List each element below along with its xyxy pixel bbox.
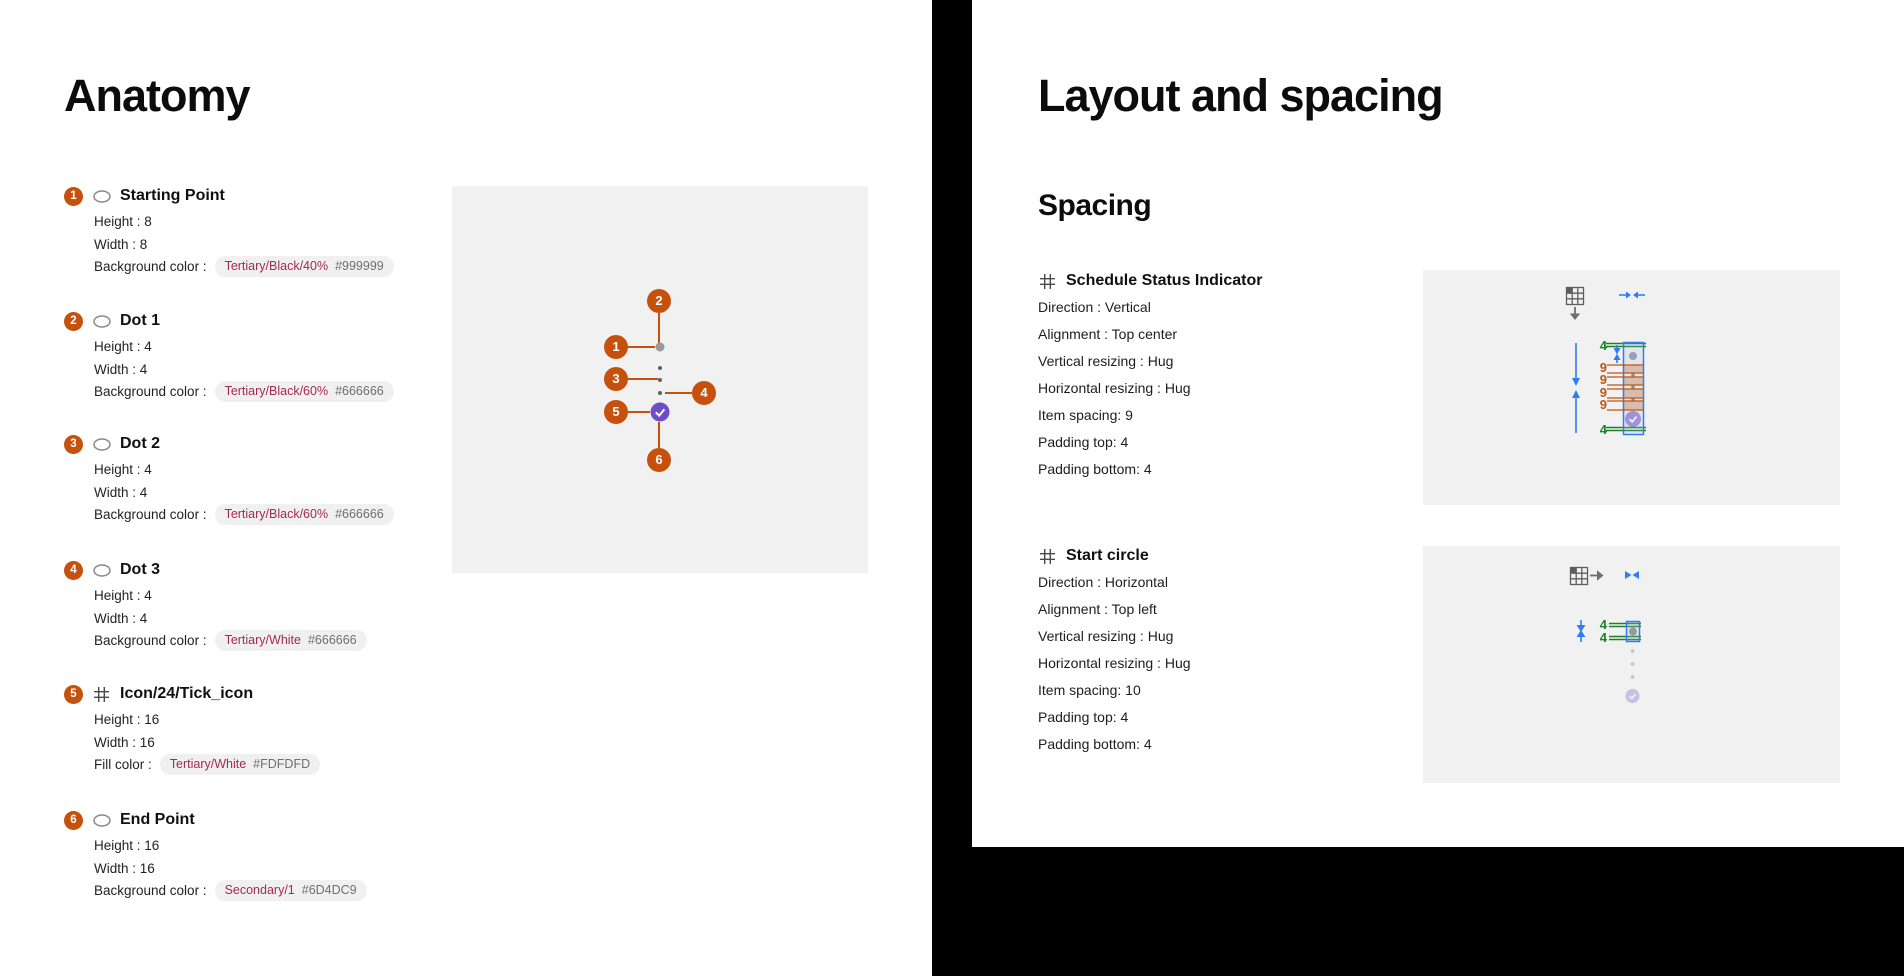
vertical-spacing-diagram	[1423, 270, 1840, 505]
section-property: Padding bottom: 4	[1038, 735, 1152, 753]
section-header: Schedule Status Indicator	[1038, 271, 1262, 291]
anatomy-item-header: 3Dot 2	[64, 434, 160, 454]
hex-value: #FDFDFD	[253, 754, 310, 775]
callout-badge-6: 6	[647, 448, 671, 472]
item-property: Height : 4	[94, 461, 152, 479]
token-name: Secondary/1	[225, 880, 295, 901]
color-token-chip: Secondary/1#6D4DC9	[215, 880, 367, 901]
schedule-status-indicator-spacing-panel: 4 9 9 9 9 4	[1423, 270, 1840, 505]
anatomy-item-header: 4Dot 3	[64, 560, 160, 580]
section-property: Alignment : Top left	[1038, 600, 1157, 618]
item-title: Starting Point	[120, 187, 225, 205]
dot-1	[658, 366, 662, 370]
color-token-chip: Tertiary/Black/40%#999999	[215, 256, 394, 277]
section-property: Padding bottom: 4	[1038, 460, 1152, 478]
item-title: End Point	[120, 811, 195, 829]
section-property: Direction : Horizontal	[1038, 573, 1168, 591]
color-token-chip: Tertiary/White#666666	[215, 630, 367, 651]
anatomy-item: 5Icon/24/Tick_iconHeight : 16Width : 16F…	[64, 684, 444, 784]
frame-icon	[1038, 274, 1057, 289]
section-title: Schedule Status Indicator	[1066, 272, 1262, 290]
item-property: Width : 4	[94, 484, 147, 502]
frame-icon	[1038, 549, 1057, 564]
item-color-property: Background color :Tertiary/Black/60%#666…	[94, 381, 394, 402]
token-name: Tertiary/White	[225, 630, 301, 651]
callout-badge-2: 2	[647, 289, 671, 313]
padding-top-value: 4	[1589, 339, 1607, 353]
token-name: Tertiary/Black/60%	[225, 381, 329, 402]
anatomy-item-header: 2Dot 1	[64, 311, 160, 331]
anatomy-item: 3Dot 2Height : 4Width : 4Background colo…	[64, 434, 444, 534]
item-property: Width : 4	[94, 361, 147, 379]
hug-vertical-icon	[1577, 620, 1586, 642]
color-property-label: Fill color :	[94, 754, 152, 775]
item-number-badge: 2	[64, 312, 83, 331]
section-property: Vertical resizing : Hug	[1038, 627, 1173, 645]
color-token-chip: Tertiary/Black/60%#666666	[215, 381, 394, 402]
item-property: Width : 16	[94, 860, 155, 878]
spacing-section: Start circleDirection : HorizontalAlignm…	[1038, 546, 1458, 756]
callout-badge-1: 1	[604, 335, 628, 359]
item-number-badge: 1	[64, 187, 83, 206]
hex-value: #666666	[335, 381, 384, 402]
callout-badge-3: 3	[604, 367, 628, 391]
anatomy-item-header: 5Icon/24/Tick_icon	[64, 684, 253, 704]
anatomy-item: 2Dot 1Height : 4Width : 4Background colo…	[64, 311, 444, 411]
color-token-chip: Tertiary/White#FDFDFD	[160, 754, 320, 775]
item-number-badge: 3	[64, 435, 83, 454]
item-number-badge: 5	[64, 685, 83, 704]
token-name: Tertiary/Black/40%	[225, 256, 329, 277]
start-circle-spacing-panel: 4 4	[1423, 546, 1840, 783]
anatomy-item: 6End PointHeight : 16Width : 16Backgroun…	[64, 810, 444, 910]
hug-horizontal-icon	[1619, 292, 1645, 299]
anatomy-diagram	[452, 186, 868, 573]
hex-value: #666666	[335, 504, 384, 525]
item-title: Dot 3	[120, 561, 160, 579]
anatomy-page-title: Anatomy	[64, 70, 250, 122]
section-property: Vertical resizing : Hug	[1038, 352, 1173, 370]
hex-value: #6D4DC9	[302, 880, 357, 901]
horizontal-spacing-diagram	[1423, 546, 1840, 783]
end-point-circle	[651, 403, 670, 422]
item-color-property: Background color :Tertiary/Black/60%#666…	[94, 504, 394, 525]
hex-value: #666666	[308, 630, 357, 651]
section-property: Horizontal resizing : Hug	[1038, 379, 1191, 397]
item-color-property: Background color :Tertiary/Black/40%#999…	[94, 256, 394, 277]
item-color-property: Fill color :Tertiary/White#FDFDFD	[94, 754, 320, 775]
anatomy-item-header: 1Starting Point	[64, 186, 225, 206]
item-property: Width : 4	[94, 610, 147, 628]
item-property: Width : 8	[94, 236, 147, 254]
spacing-section: Schedule Status IndicatorDirection : Ver…	[1038, 271, 1458, 481]
ghost-starting-point	[1629, 628, 1637, 636]
item-title: Icon/24/Tick_icon	[120, 685, 253, 703]
section-property: Padding top: 4	[1038, 708, 1128, 726]
item-property: Height : 4	[94, 338, 152, 356]
ghost-end-point	[1626, 689, 1640, 703]
vertical-measure-line	[1572, 343, 1580, 433]
item-property: Height : 16	[94, 837, 159, 855]
ghost-dot	[1631, 675, 1635, 679]
section-property: Horizontal resizing : Hug	[1038, 654, 1191, 672]
padding-bottom-value: 4	[1589, 423, 1607, 437]
dot-2	[658, 378, 662, 382]
ghost-end-point	[1625, 411, 1641, 427]
hug-horizontal-icon	[1625, 571, 1639, 579]
autolayout-horizontal-icon	[1571, 568, 1604, 585]
autolayout-vertical-icon	[1567, 288, 1584, 321]
spacing-heading: Spacing	[1038, 188, 1151, 224]
ghost-starting-point	[1629, 352, 1637, 360]
ellipse-icon	[92, 190, 111, 203]
color-property-label: Background color :	[94, 880, 207, 901]
section-property: Padding top: 4	[1038, 433, 1128, 451]
anatomy-diagram-panel: 1 2 3 4 5 6	[452, 186, 868, 573]
callout-badge-4: 4	[692, 381, 716, 405]
item-property: Height : 16	[94, 711, 159, 729]
color-property-label: Background color :	[94, 504, 207, 525]
hex-value: #999999	[335, 256, 384, 277]
color-property-label: Background color :	[94, 381, 207, 402]
figma-canvas: Anatomy 1Starting PointHeight : 8Width :…	[0, 0, 1904, 976]
layout-page-title: Layout and spacing	[1038, 70, 1443, 122]
ghost-dot	[1631, 649, 1635, 653]
ghost-dot	[1631, 385, 1635, 389]
item-number-badge: 4	[64, 561, 83, 580]
item-property: Height : 8	[94, 213, 152, 231]
section-property: Alignment : Top center	[1038, 325, 1177, 343]
item-spacing-value: 9	[1589, 398, 1607, 412]
ellipse-icon	[92, 438, 111, 451]
item-property: Width : 16	[94, 734, 155, 752]
section-title: Start circle	[1066, 547, 1149, 565]
ellipse-icon	[92, 315, 111, 328]
ghost-dot	[1631, 373, 1635, 377]
token-name: Tertiary/Black/60%	[225, 504, 329, 525]
item-title: Dot 2	[120, 435, 160, 453]
anatomy-item: 4Dot 3Height : 4Width : 4Background colo…	[64, 560, 444, 660]
ellipse-icon	[92, 814, 111, 827]
anatomy-page: Anatomy 1Starting PointHeight : 8Width :…	[0, 0, 932, 976]
item-color-property: Background color :Secondary/1#6D4DC9	[94, 880, 367, 901]
color-property-label: Background color :	[94, 256, 207, 277]
token-name: Tertiary/White	[170, 754, 246, 775]
dot-3	[658, 391, 662, 395]
item-number-badge: 6	[64, 811, 83, 830]
section-header: Start circle	[1038, 546, 1149, 566]
item-color-property: Background color :Tertiary/White#666666	[94, 630, 367, 651]
section-property: Item spacing: 9	[1038, 406, 1133, 424]
callout-badge-5: 5	[604, 400, 628, 424]
section-property: Direction : Vertical	[1038, 298, 1151, 316]
color-property-label: Background color :	[94, 630, 207, 651]
starting-point-dot	[656, 343, 665, 352]
anatomy-item: 1Starting PointHeight : 8Width : 8Backgr…	[64, 186, 444, 286]
frame-icon	[92, 687, 111, 702]
anatomy-item-header: 6End Point	[64, 810, 195, 830]
section-property: Item spacing: 10	[1038, 681, 1141, 699]
item-title: Dot 1	[120, 312, 160, 330]
color-token-chip: Tertiary/Black/60%#666666	[215, 504, 394, 525]
padding-bottom-value: 4	[1589, 631, 1607, 645]
ellipse-icon	[92, 564, 111, 577]
layout-page: Layout and spacing Spacing Schedule Stat…	[972, 0, 1904, 847]
item-property: Height : 4	[94, 587, 152, 605]
hug-vertical-icon	[1614, 345, 1621, 363]
ghost-dot	[1631, 662, 1635, 666]
